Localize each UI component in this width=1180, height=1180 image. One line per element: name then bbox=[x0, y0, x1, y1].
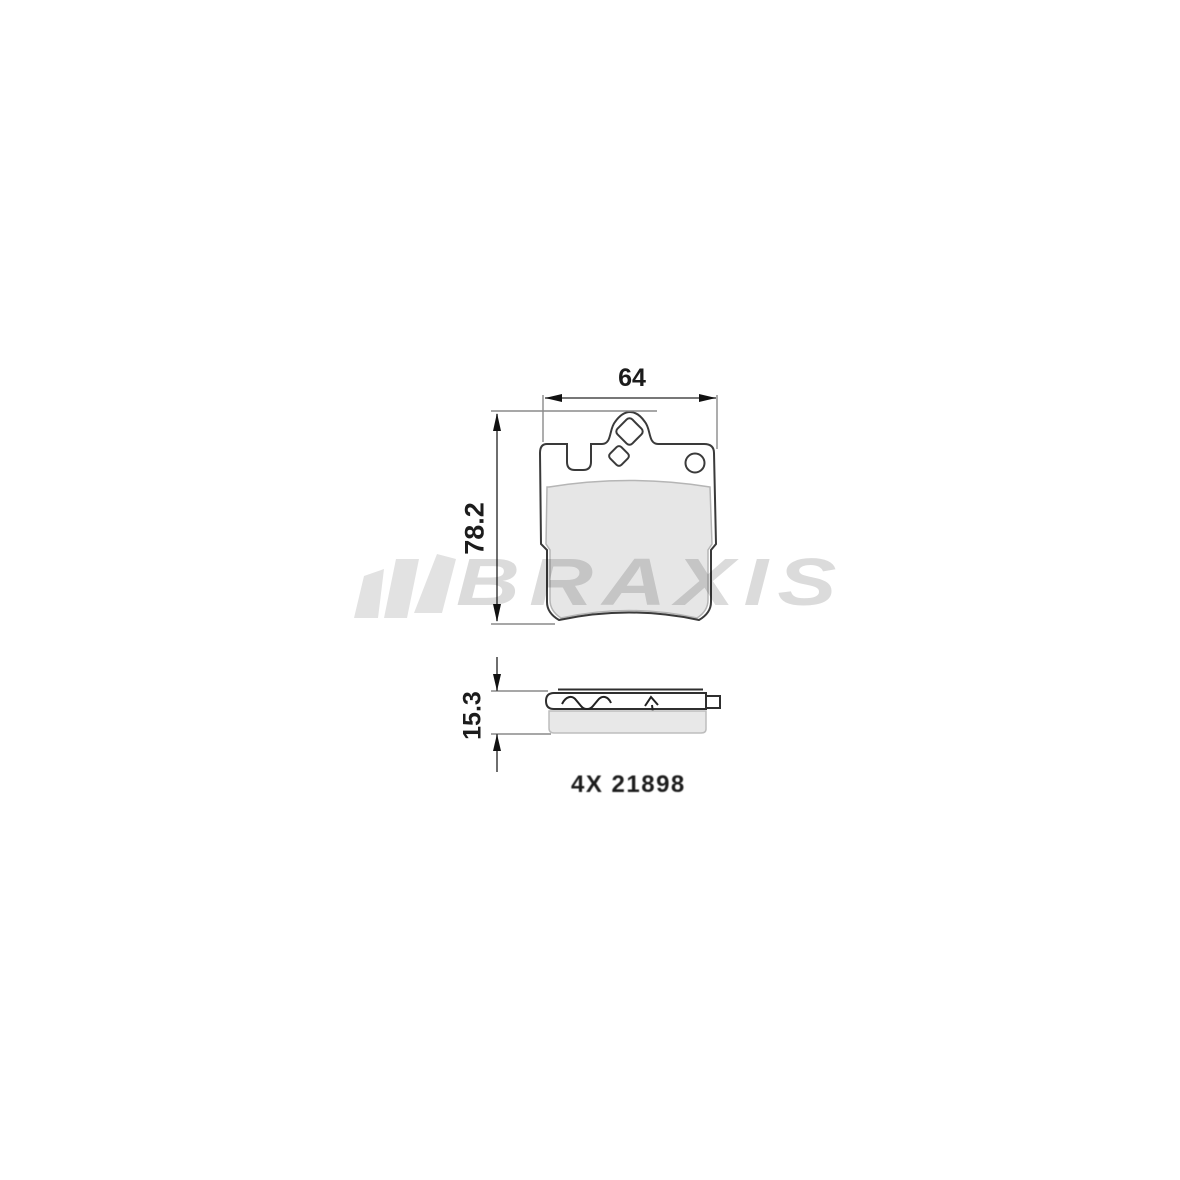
arrowhead-up bbox=[493, 413, 501, 431]
technical-drawing-svg bbox=[0, 0, 1180, 1180]
front-view bbox=[540, 412, 716, 620]
arrowhead-down bbox=[493, 604, 501, 622]
side-backplate bbox=[546, 693, 706, 709]
arrowhead-right bbox=[699, 394, 716, 402]
thickness-dimension-label: 15.3 bbox=[461, 671, 486, 761]
side-friction-block bbox=[549, 711, 706, 733]
friction-material bbox=[546, 481, 712, 619]
side-backplate-tab bbox=[706, 696, 720, 708]
height-dimension-label: 78.2 bbox=[462, 474, 489, 584]
right-round-hole bbox=[686, 454, 705, 473]
arrowhead-left bbox=[545, 394, 562, 402]
arrowhead-down bbox=[493, 674, 501, 691]
width-dimension-label: 64 bbox=[597, 366, 667, 391]
dimension-thickness bbox=[491, 657, 551, 772]
quantity-part-number-label: 4X 21898 bbox=[571, 773, 701, 797]
side-view bbox=[546, 690, 720, 734]
arrowhead-up bbox=[493, 734, 501, 751]
brake-pad-product-drawing: BRAXIS 64 78.2 15.3 4X 21898 bbox=[0, 0, 1180, 1180]
